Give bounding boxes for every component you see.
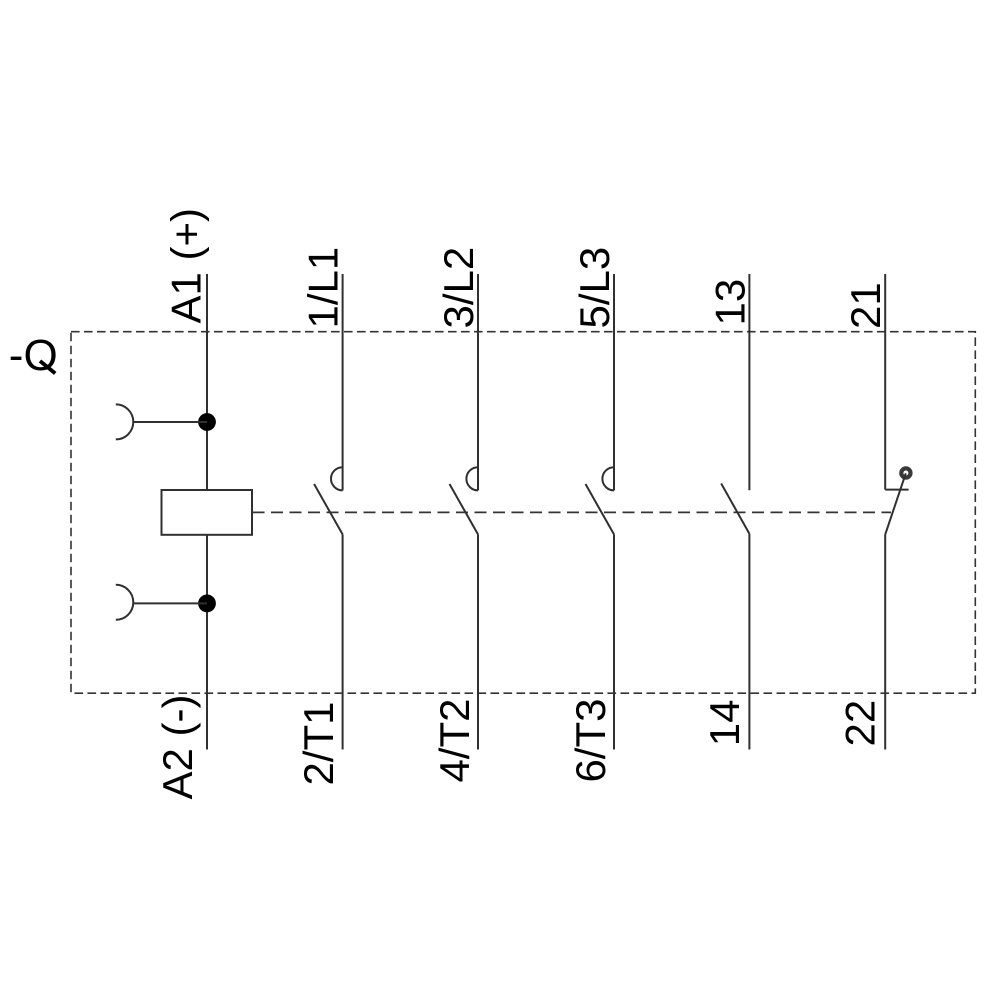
svg-text:14: 14 (701, 700, 748, 747)
svg-text:A1 (+): A1 (+) (162, 208, 209, 324)
svg-text:21: 21 (842, 282, 889, 329)
svg-text:A2 (-): A2 (-) (154, 695, 201, 800)
svg-text:1/L1: 1/L1 (299, 247, 346, 329)
svg-text:6/T3: 6/T3 (567, 699, 614, 783)
svg-text:5/L3: 5/L3 (571, 247, 618, 329)
svg-text:4/T2: 4/T2 (431, 699, 478, 783)
svg-text:3/L2: 3/L2 (435, 247, 482, 329)
svg-text:-O: -O (9, 331, 58, 380)
svg-text:13: 13 (707, 279, 754, 326)
svg-text:22: 22 (837, 700, 884, 747)
svg-text:2/T1: 2/T1 (295, 702, 342, 786)
